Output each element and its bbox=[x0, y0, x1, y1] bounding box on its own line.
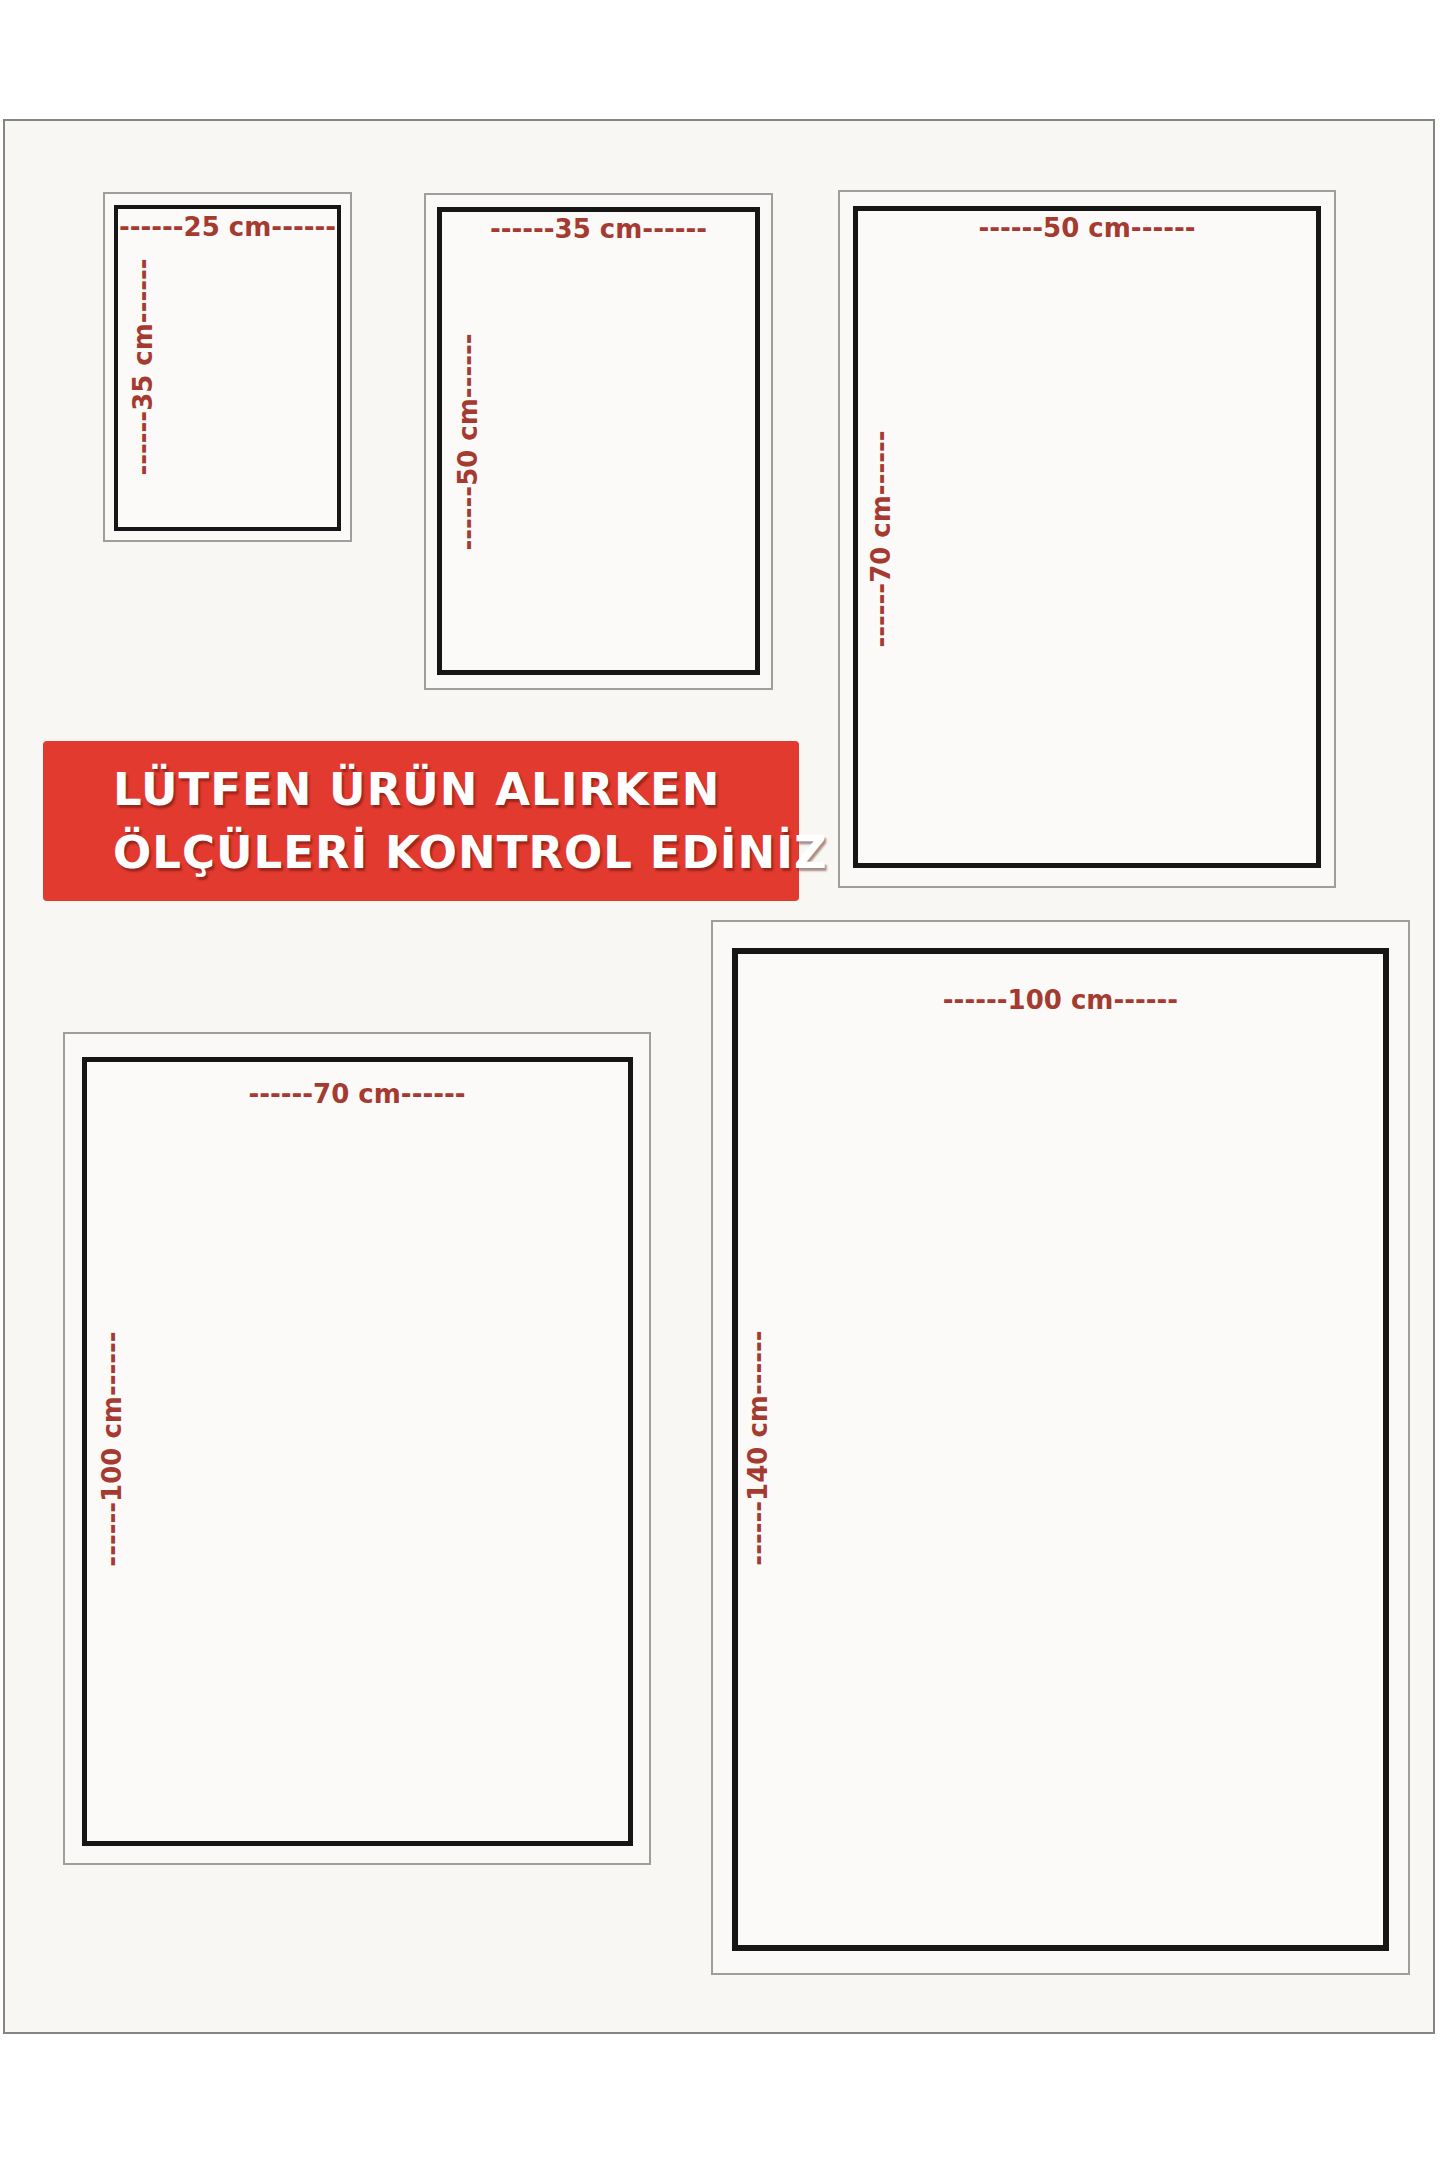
height-dimension-label-70cm: ------70 cm------ bbox=[866, 430, 896, 647]
size-box-50x70-inner-frame bbox=[853, 206, 1321, 868]
width-dimension-label-50cm: ------50 cm------ bbox=[840, 213, 1334, 243]
size-box-35x50-inner-frame bbox=[437, 207, 760, 675]
width-dimension-label-100cm: ------100 cm------ bbox=[713, 985, 1408, 1015]
height-dimension-label-100cm: ------100 cm------ bbox=[97, 1331, 127, 1566]
height-dimension-label-50cm: ------50 cm------ bbox=[453, 333, 483, 550]
size-box-50x70: ------50 cm------ ------70 cm------ bbox=[838, 190, 1336, 888]
size-box-70x100: ------70 cm------ ------100 cm------ bbox=[63, 1032, 651, 1865]
measurement-warning-banner: LÜTFEN ÜRÜN ALIRKEN ÖLÇÜLERİ KONTROL EDİ… bbox=[43, 741, 799, 901]
size-box-35x50: ------35 cm------ ------50 cm------ bbox=[424, 193, 773, 690]
height-dimension-label-140cm: ------140 cm------ bbox=[743, 1330, 773, 1565]
warning-text-line1: LÜTFEN ÜRÜN ALIRKEN bbox=[113, 758, 799, 821]
width-dimension-label-35cm: ------35 cm------ bbox=[426, 214, 771, 244]
size-box-100x140-inner-frame bbox=[732, 948, 1389, 1951]
size-box-100x140: ------100 cm------ ------140 cm------ bbox=[711, 920, 1410, 1975]
warning-text-line2: ÖLÇÜLERİ KONTROL EDİNİZ bbox=[113, 821, 799, 884]
height-dimension-label-35cm: ------35 cm------ bbox=[128, 258, 158, 475]
size-box-25x35: ------25 cm------ ------35 cm------ bbox=[103, 192, 352, 542]
size-box-70x100-inner-frame bbox=[82, 1057, 633, 1846]
width-dimension-label-70cm: ------70 cm------ bbox=[65, 1079, 649, 1109]
width-dimension-label-25cm: ------25 cm------ bbox=[105, 212, 350, 242]
